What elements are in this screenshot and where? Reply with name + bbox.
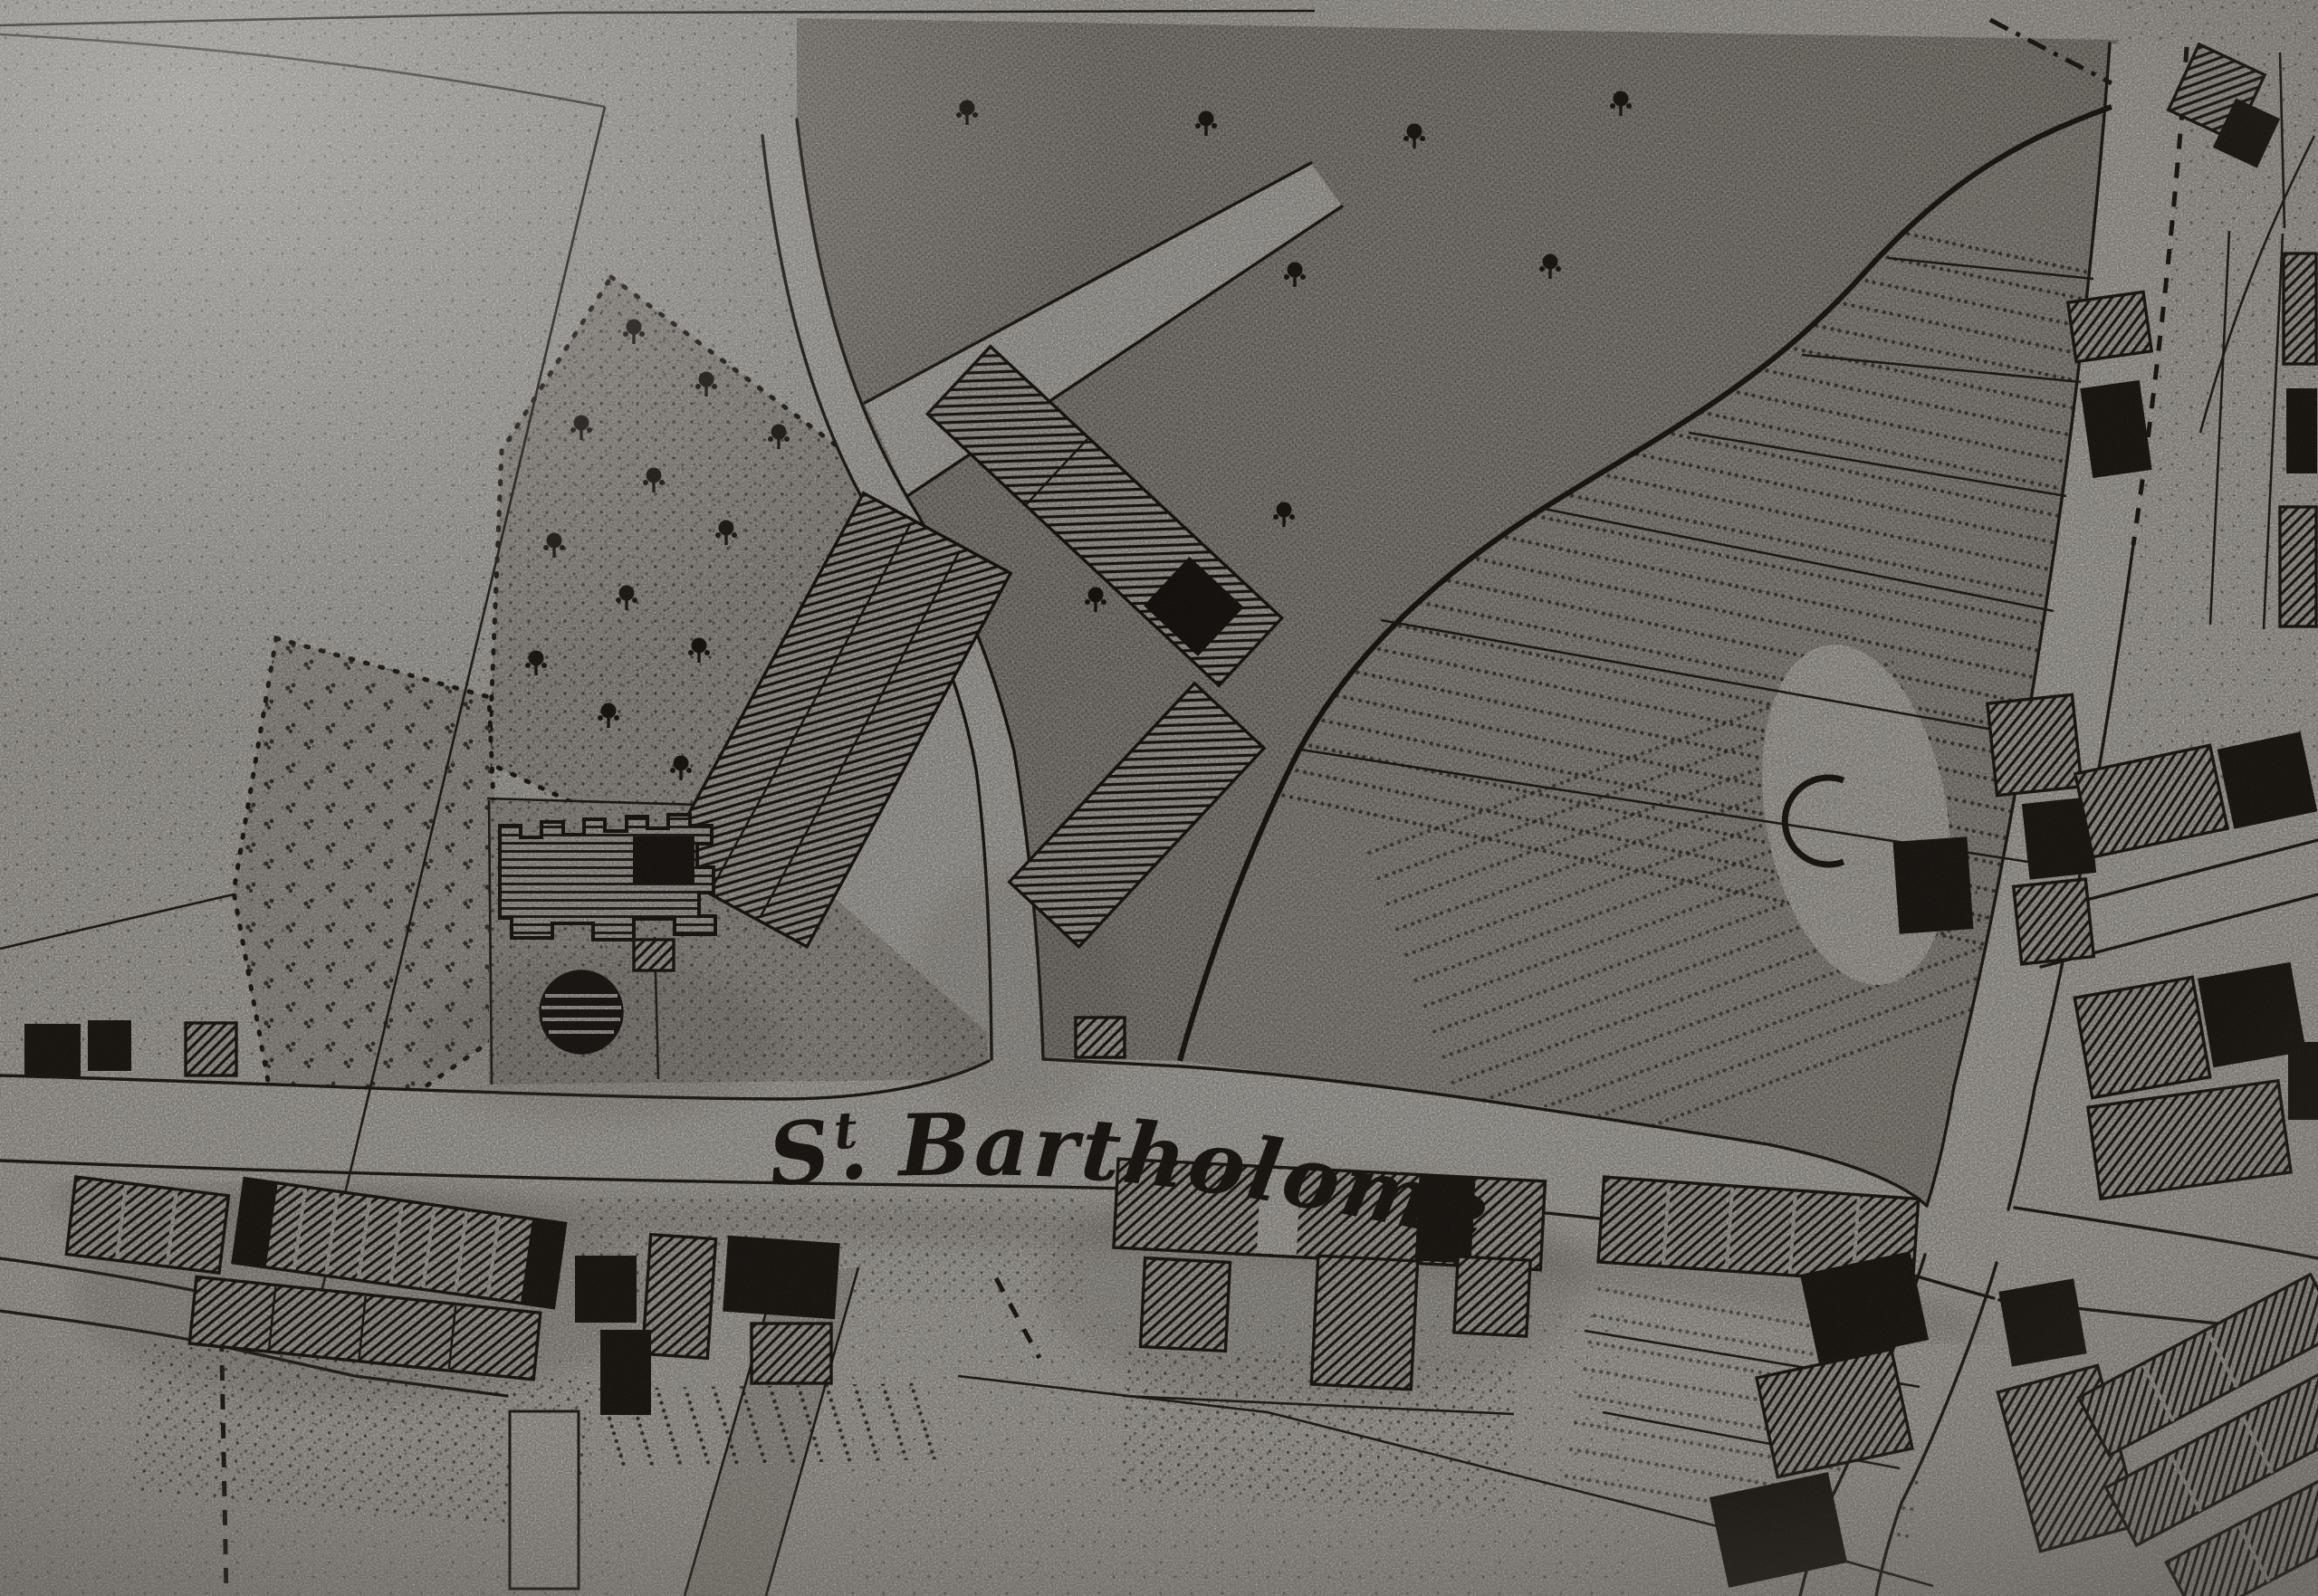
building	[2289, 1043, 2318, 1119]
manor-house-wing	[634, 940, 674, 970]
building	[1454, 1257, 1530, 1336]
manor-house-dark-wing	[634, 837, 694, 883]
building	[1076, 1018, 1125, 1057]
empty-plot-outline	[510, 1411, 579, 1589]
building	[2280, 507, 2316, 626]
building	[2014, 879, 2094, 964]
building	[2068, 291, 2151, 361]
building	[1894, 837, 1973, 932]
manor-pond	[541, 971, 622, 1053]
building	[2284, 253, 2316, 364]
building	[1311, 1256, 1417, 1390]
building	[89, 1021, 130, 1070]
building	[2074, 977, 2209, 1097]
terrace-row	[66, 1177, 228, 1273]
building	[1141, 1258, 1231, 1352]
building	[2081, 381, 2150, 477]
building	[25, 1025, 80, 1075]
building	[2287, 389, 2316, 473]
scanned-map-photo: St.Bartholomew	[0, 0, 2318, 1596]
road-label-period: .	[835, 1099, 874, 1200]
building	[2000, 1280, 2086, 1366]
road-label-prefix: S	[764, 1101, 838, 1206]
building	[1988, 694, 2082, 795]
building	[186, 1023, 236, 1075]
building	[2218, 732, 2316, 827]
